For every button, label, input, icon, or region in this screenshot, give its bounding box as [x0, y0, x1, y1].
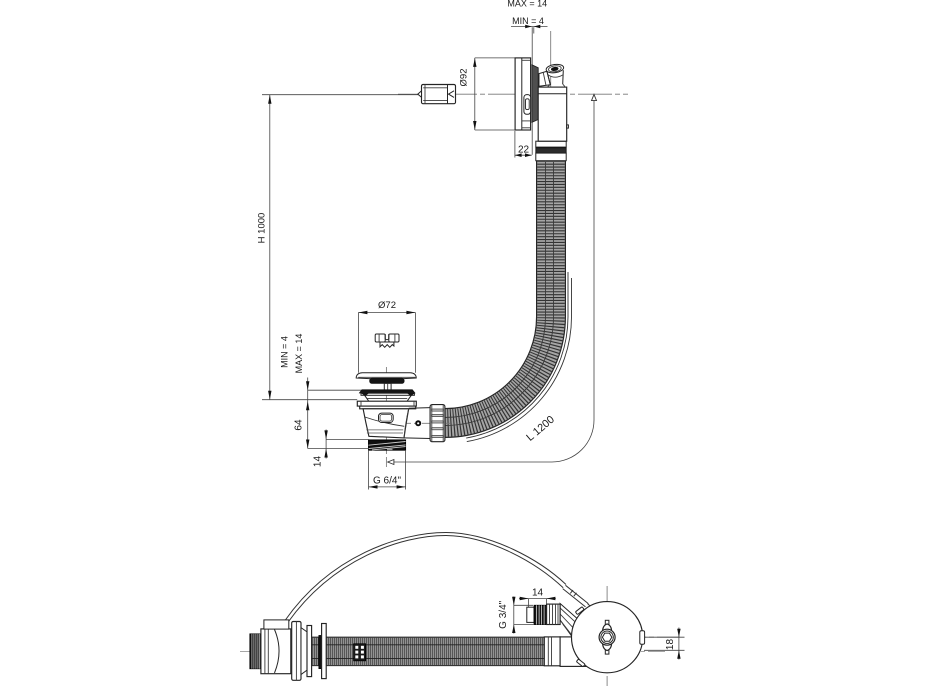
svg-text:MIN = 4: MIN = 4	[280, 336, 290, 368]
svg-text:14: 14	[532, 588, 544, 599]
svg-text:MIN = 4: MIN = 4	[512, 16, 544, 26]
svg-text:22: 22	[518, 144, 530, 155]
svg-text:H 1000: H 1000	[257, 213, 268, 244]
svg-text:64: 64	[294, 419, 305, 431]
svg-text:Ø72: Ø72	[378, 300, 396, 311]
svg-text:MAX = 14: MAX = 14	[507, 0, 547, 9]
svg-text:Ø92: Ø92	[459, 69, 470, 87]
svg-text:14: 14	[313, 456, 324, 468]
svg-text:G 3/4": G 3/4"	[498, 600, 509, 628]
svg-text:G 6/4": G 6/4"	[373, 476, 401, 487]
svg-text:18: 18	[665, 639, 676, 651]
svg-text:MAX = 14: MAX = 14	[294, 334, 304, 374]
